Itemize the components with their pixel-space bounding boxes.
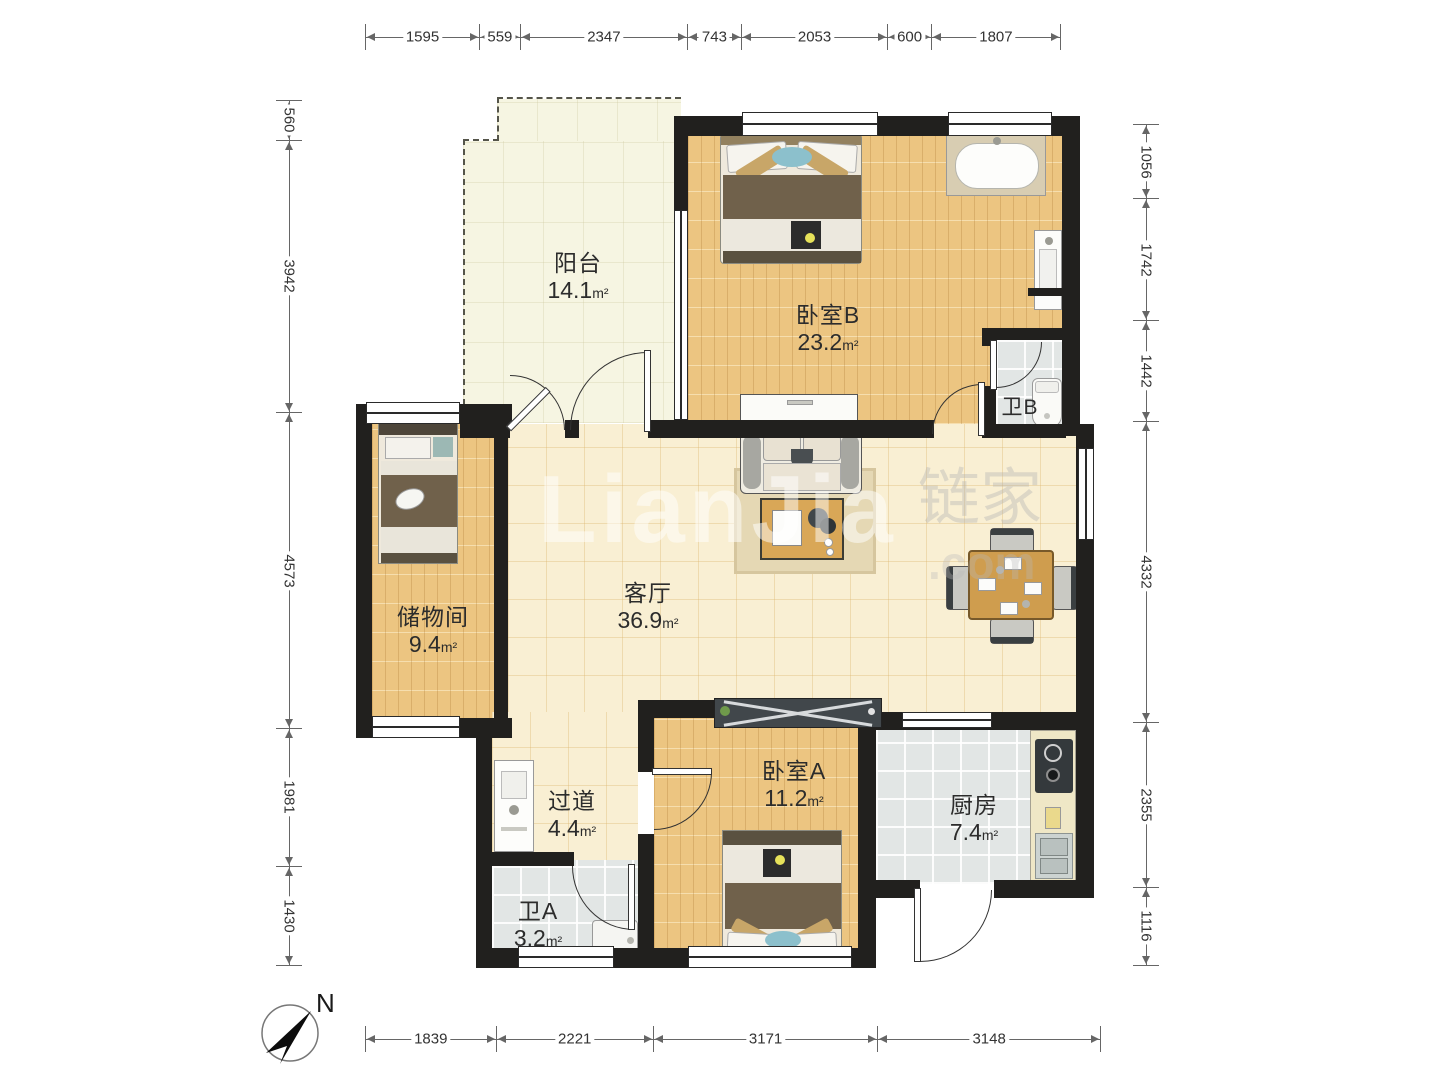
dim-arrow-icon (655, 1035, 663, 1043)
room-name: 过道 (512, 788, 632, 814)
bowl (820, 518, 836, 534)
wall (994, 880, 1094, 898)
balcony-dashed-edge (463, 139, 465, 425)
dim-arrow-icon (933, 33, 941, 41)
window (366, 402, 460, 424)
room-label-balcony: 阳台 14.1m² (518, 250, 638, 302)
dim-value: 4332 (1139, 552, 1154, 591)
dim-arrow-icon (1142, 126, 1150, 134)
balcony-dashed-edge (463, 139, 499, 141)
dim-segment: 2053 (741, 24, 888, 50)
sink-basin (1040, 858, 1068, 874)
bed-band (381, 461, 457, 475)
knob (868, 708, 875, 715)
dim-arrow-icon (879, 1035, 887, 1043)
wall (460, 420, 510, 438)
dim-segment: 600 (887, 24, 931, 50)
burner (1044, 744, 1062, 762)
toilet-tank (1035, 381, 1059, 393)
lamp (775, 855, 785, 865)
room-label-bedroom-b: 卧室B 23.2m² (768, 302, 888, 354)
dim-value: 1116 (1139, 908, 1154, 945)
dim-arrow-icon (285, 414, 293, 422)
dim-value: 3148 (969, 1032, 1008, 1047)
headboard (379, 423, 457, 435)
dim-value: 1056 (1139, 142, 1154, 181)
room-name: 卧室A (734, 758, 854, 784)
cup (1022, 600, 1030, 608)
kitchen-counter (1030, 730, 1076, 882)
room-area: 11.2m² (734, 787, 854, 810)
vanity-sink (1034, 230, 1062, 310)
window (1078, 448, 1094, 540)
dim-arrow-icon (1142, 311, 1150, 319)
sofa (740, 430, 862, 494)
floor-plan-canvas: LianJia 链家 .com (0, 0, 1440, 1080)
dim-arrow-icon (878, 33, 886, 41)
dim-arrow-icon (644, 1035, 652, 1043)
dim-arrow-icon (1142, 878, 1150, 886)
dim-segment: 1442 (1133, 320, 1159, 421)
room-label-living-room: 客厅 36.9m² (588, 580, 708, 632)
faucet (1045, 237, 1053, 245)
dim-arrow-icon (470, 33, 478, 41)
burner (1046, 768, 1060, 782)
plate (1000, 602, 1018, 615)
dim-value: 560 (282, 105, 297, 136)
wall (1028, 288, 1062, 296)
dim-value: 1430 (282, 896, 297, 935)
dim-segment: 1981 (276, 728, 302, 865)
coffee-table (760, 498, 844, 560)
dim-arrow-icon (487, 1035, 495, 1043)
dimensions-bottom: 1839222131713148 (365, 1026, 1101, 1052)
dim-segment: 4332 (1133, 421, 1159, 722)
dim-arrow-icon (1051, 33, 1059, 41)
dim-value: 3942 (282, 257, 297, 296)
dimensions-right: 105617421442433223551116 (1133, 124, 1159, 966)
dim-segment: 1807 (931, 24, 1061, 50)
room-area: 23.2m² (768, 331, 888, 354)
footboard (723, 251, 861, 263)
door-leaf-bedroom-a (652, 768, 712, 775)
dim-segment: 1430 (276, 866, 302, 967)
dim-value: 1442 (1139, 351, 1154, 390)
window (742, 112, 878, 136)
dim-arrow-icon (285, 719, 293, 727)
dim-arrow-icon (732, 33, 740, 41)
dim-value: 2221 (555, 1032, 594, 1047)
machine-dial (627, 937, 634, 944)
dim-value: 2053 (795, 30, 834, 45)
chair-back (991, 637, 1033, 643)
cup (996, 566, 1004, 574)
wall (674, 136, 688, 210)
wall (996, 328, 1066, 340)
room-label-bath-a: 卫A 3.2m² (478, 898, 598, 950)
utensil-holder (1045, 807, 1061, 829)
dim-segment: 1595 (365, 24, 479, 50)
sink-basin (1040, 838, 1068, 856)
window (948, 112, 1052, 136)
dim-segment: 3148 (877, 1026, 1101, 1052)
room-name: 卫A (478, 898, 598, 924)
dim-segment: 1116 (1133, 887, 1159, 966)
dim-arrow-icon (1142, 889, 1150, 897)
dim-arrow-icon (522, 33, 530, 41)
dim-arrow-icon (285, 868, 293, 876)
wall (614, 948, 688, 968)
wall (858, 700, 876, 968)
dining-chair (1052, 566, 1078, 610)
dim-segment: 2355 (1133, 722, 1159, 886)
dimensions-left: 5603942457319811430 (276, 100, 302, 966)
dim-value: 600 (894, 30, 925, 45)
dim-arrow-icon (743, 33, 751, 41)
dim-arrow-icon (367, 33, 375, 41)
dim-value: 1839 (411, 1032, 450, 1047)
armrest (743, 435, 761, 489)
dim-segment: 559 (479, 24, 520, 50)
room-area: 7.4m² (914, 821, 1034, 844)
dim-arrow-icon (1142, 322, 1150, 330)
room-name: 厨房 (914, 792, 1034, 818)
wall (862, 880, 920, 898)
dim-segment: 1839 (365, 1026, 496, 1052)
faucet (993, 137, 1001, 145)
dim-arrow-icon (678, 33, 686, 41)
blanket (723, 175, 861, 219)
plant (720, 706, 730, 716)
wall (648, 420, 690, 438)
wall (852, 948, 876, 968)
wall (356, 404, 372, 738)
stove (1035, 739, 1073, 793)
window (902, 712, 992, 728)
cup (824, 538, 833, 547)
room-label-storage: 储物间 9.4m² (373, 604, 493, 656)
pillow (385, 437, 431, 459)
dim-arrow-icon (285, 730, 293, 738)
wall (638, 700, 654, 772)
dim-segment: 2221 (496, 1026, 653, 1052)
dim-value: 4573 (282, 551, 297, 590)
dim-arrow-icon (367, 1035, 375, 1043)
dim-segment: 3171 (653, 1026, 877, 1052)
dim-arrow-icon (285, 956, 293, 964)
dim-segment: 1742 (1133, 198, 1159, 320)
sink-basin (1039, 249, 1057, 289)
double-bed-b (720, 134, 862, 264)
dim-segment: 4573 (276, 412, 302, 728)
door-leaf-bedroom-b (978, 382, 985, 436)
balcony-floor (497, 99, 681, 143)
dim-arrow-icon (498, 1035, 506, 1043)
wall (492, 852, 574, 866)
dim-arrow-icon (285, 857, 293, 865)
plate (978, 578, 996, 591)
room-label-bath-b: 卫B (990, 396, 1050, 420)
dim-segment: 743 (687, 24, 741, 50)
chair-back (991, 529, 1033, 535)
room-label-kitchen: 厨房 7.4m² (914, 792, 1034, 844)
dim-arrow-icon (285, 142, 293, 150)
footboard (723, 831, 841, 845)
single-bed (378, 422, 458, 564)
dim-arrow-icon (1142, 412, 1150, 420)
footboard (381, 553, 457, 563)
door-leaf-bath-a (628, 864, 635, 930)
tray (772, 510, 802, 546)
room-label-hallway: 过道 4.4m² (512, 788, 632, 840)
balcony-dashed-edge (497, 97, 681, 99)
kitchen-sink (1035, 833, 1073, 879)
dim-arrow-icon (1142, 956, 1150, 964)
window (372, 716, 460, 738)
dim-value: 2347 (584, 30, 623, 45)
bathtub (946, 134, 1046, 196)
dining-chair (990, 618, 1034, 644)
room-area: 14.1m² (518, 279, 638, 302)
dim-value: 1807 (976, 30, 1015, 45)
dim-value: 1595 (403, 30, 442, 45)
dining-table (968, 550, 1054, 620)
cup (826, 548, 834, 556)
north-label: N (316, 988, 335, 1019)
dim-arrow-icon (1091, 1035, 1099, 1043)
accent-pillow (433, 437, 453, 457)
dim-value: 1981 (282, 778, 297, 817)
dresser-handle (787, 400, 813, 405)
wall (476, 948, 518, 968)
wall (1062, 116, 1080, 436)
dim-arrow-icon (868, 1035, 876, 1043)
lamp (805, 233, 815, 243)
dim-segment: 3942 (276, 140, 302, 413)
seat-cushion (763, 463, 841, 491)
balcony-dashed-edge (497, 97, 499, 141)
dim-value: 743 (699, 30, 730, 45)
dimensions-top: 1595559234774320536001807 (365, 24, 1061, 50)
dim-value: 1742 (1139, 240, 1154, 279)
dim-segment: 560 (276, 100, 302, 140)
room-label-bedroom-a: 卧室A 11.2m² (734, 758, 854, 810)
wall (674, 420, 934, 438)
dim-segment: 2347 (520, 24, 687, 50)
door-leaf-bath-b (990, 340, 997, 390)
room-name: 客厅 (588, 580, 708, 606)
door-arc-kitchen (920, 890, 992, 962)
tv-cabinet (714, 698, 882, 728)
dim-segment: 1056 (1133, 124, 1159, 198)
dim-arrow-icon (1142, 713, 1150, 721)
room-area: 36.9m² (588, 609, 708, 632)
bathtub-basin (955, 143, 1039, 189)
dim-arrow-icon (1142, 189, 1150, 197)
dim-arrow-icon (1142, 423, 1150, 431)
dresser (740, 394, 858, 422)
window (674, 210, 688, 420)
chair-back (947, 567, 953, 609)
dim-arrow-icon (1142, 200, 1150, 208)
room-name: 卧室B (768, 302, 888, 328)
dim-arrow-icon (689, 33, 697, 41)
room-area: 9.4m² (373, 633, 493, 656)
wall (494, 420, 508, 718)
door-leaf-kitchen (914, 888, 921, 962)
room-area: 4.4m² (512, 817, 632, 840)
dim-value: 3171 (746, 1032, 785, 1047)
round-cushion (772, 147, 812, 167)
dim-value: 2355 (1139, 785, 1154, 824)
plate (1004, 557, 1022, 570)
room-name: 卫B (990, 396, 1050, 420)
dim-arrow-icon (1142, 724, 1150, 732)
wall (982, 424, 1066, 438)
room-area: 3.2m² (478, 927, 598, 950)
dim-arrow-icon (285, 403, 293, 411)
door-leaf-balcony (644, 350, 651, 432)
armrest (841, 435, 859, 489)
window (688, 946, 852, 968)
room-name: 阳台 (518, 250, 638, 276)
plate (1024, 582, 1042, 595)
room-name: 储物间 (373, 604, 493, 630)
dim-value: 559 (484, 30, 515, 45)
bed-band (381, 527, 457, 553)
